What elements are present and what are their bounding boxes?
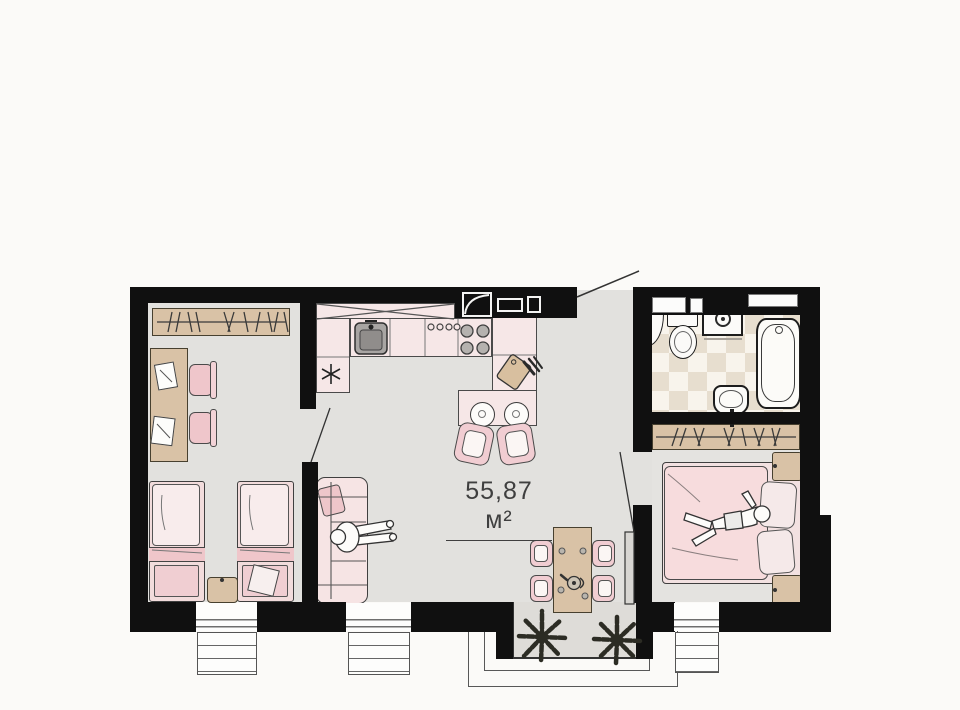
toilet-icon: [667, 311, 698, 360]
bar-chair-icon: [495, 421, 537, 466]
wall-bottom: [652, 602, 675, 632]
dining-table-icon: [553, 527, 592, 613]
bed-foot: [154, 565, 199, 597]
wall-bay-right: [636, 602, 653, 659]
bed-blanket-band: [237, 547, 294, 562]
kitchen-counter-row: [350, 318, 492, 357]
wall-bedroom-partition: [633, 505, 652, 603]
desk-chair-back: [210, 361, 217, 399]
single-bed-icon: [149, 481, 205, 602]
area-label: 55,87 м²: [446, 477, 552, 541]
wall-right-lower: [800, 515, 831, 632]
paper-icon: [154, 361, 178, 390]
nightstand-icon: [772, 452, 802, 481]
wardrobe-icon: [652, 424, 800, 450]
dining-chair-icon: [592, 575, 615, 602]
window: [196, 603, 257, 631]
dining-chair-icon: [530, 540, 553, 567]
wall-bottom: [411, 602, 496, 632]
bedroom-door-gap-floor: [633, 452, 652, 505]
wall-bathroom-left: [633, 287, 652, 452]
wall-children-partition-lower: [302, 462, 318, 602]
desk-chair-back: [210, 409, 217, 447]
wall-bottom: [257, 602, 346, 632]
washing-machine-shadow: [704, 338, 742, 340]
nightstand-icon: [772, 575, 802, 605]
dining-chair-icon: [530, 575, 553, 602]
wall-bottom: [130, 602, 196, 632]
window: [346, 603, 411, 631]
wardrobe-icon: [152, 308, 290, 336]
vent-shaft-icon: [462, 292, 492, 317]
pillow-icon: [756, 529, 796, 576]
vent-shaft-icon: [497, 298, 523, 312]
nightstand-icon: [207, 577, 238, 603]
vent-box-icon: [652, 297, 686, 313]
bed-pillow: [152, 484, 200, 546]
vent-box-icon: [690, 298, 703, 313]
window-ledge: [675, 632, 719, 673]
washbasin-icon: [713, 385, 749, 415]
entry-threshold-floor: [577, 290, 633, 304]
floor-plan: 55,87 м²: [0, 0, 960, 710]
bed-blanket-band: [149, 547, 205, 562]
dining-chair-icon: [592, 540, 615, 567]
kitchen-counter-left: [316, 318, 350, 393]
children-door-gap-floor: [300, 408, 318, 464]
wall-bottom: [719, 602, 801, 632]
bathtub-icon: [756, 318, 801, 409]
single-bed-icon: [237, 481, 294, 602]
wall-left: [130, 287, 148, 632]
wall-children-partition-upper: [300, 303, 316, 409]
paper-icon: [150, 416, 175, 446]
window: [674, 603, 719, 631]
wall-bathroom-bottom: [650, 412, 800, 424]
vent-box-icon: [748, 294, 798, 307]
wall-right-upper: [800, 287, 820, 517]
bed-pillow: [240, 484, 289, 546]
kitchen-counter-right: [492, 315, 537, 392]
drain-icon: [775, 326, 783, 334]
wall-top-left: [130, 287, 455, 303]
window-ledge: [348, 632, 410, 675]
wall-bay-left: [496, 602, 513, 659]
bed-blanket: [664, 466, 768, 580]
vent-shaft-icon: [527, 296, 541, 313]
window-ledge: [197, 632, 257, 675]
pillow-icon: [758, 481, 797, 529]
